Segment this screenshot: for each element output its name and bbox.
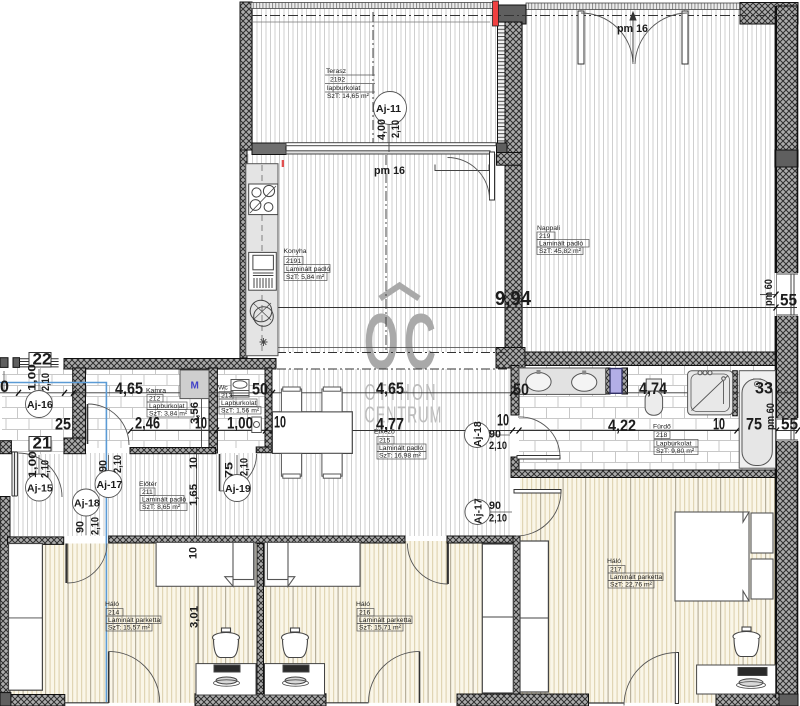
- svg-text:SzT: 15,57 m²: SzT: 15,57 m²: [108, 625, 151, 632]
- svg-text:90: 90: [489, 429, 501, 441]
- svg-text:75: 75: [224, 462, 236, 478]
- svg-text:Fürdő: Fürdő: [653, 424, 671, 431]
- svg-text:2,10: 2,10: [40, 460, 52, 478]
- svg-text:Laminált parketta: Laminált parketta: [359, 617, 411, 624]
- svg-text:214: 214: [108, 610, 120, 617]
- svg-text:10: 10: [274, 413, 286, 432]
- svg-text:55: 55: [780, 291, 797, 310]
- svg-text:Lapburkolat: Lapburkolat: [221, 400, 257, 407]
- svg-text:Aj-17: Aj-17: [473, 498, 485, 524]
- svg-text:Konyha: Konyha: [284, 248, 307, 255]
- svg-text:75: 75: [746, 415, 762, 434]
- svg-text:SzT: 45,82 m²: SzT: 45,82 m²: [539, 248, 582, 255]
- svg-text:10: 10: [713, 415, 725, 434]
- svg-text:90: 90: [75, 521, 87, 533]
- svg-text:Laminált parketta: Laminált parketta: [108, 617, 160, 624]
- svg-text:4,65: 4,65: [376, 379, 404, 398]
- svg-text:Nappali: Nappali: [537, 225, 561, 232]
- svg-text:Háló: Háló: [105, 601, 119, 608]
- svg-text:33: 33: [755, 379, 773, 398]
- svg-text:1,65: 1,65: [188, 484, 200, 506]
- svg-text:1,00: 1,00: [227, 414, 253, 433]
- svg-text:2,10: 2,10: [40, 373, 52, 391]
- svg-text:Aj-11: Aj-11: [376, 103, 401, 115]
- svg-text:Laminált padló: Laminált padló: [539, 241, 583, 248]
- svg-text:4,22: 4,22: [608, 416, 636, 435]
- svg-text:Lapburkolat: Lapburkolat: [149, 403, 185, 410]
- svg-text:SzT: 5,84 m²: SzT: 5,84 m²: [286, 274, 325, 281]
- svg-text:Háló: Háló: [607, 558, 621, 565]
- svg-text:pm 16: pm 16: [374, 165, 405, 177]
- svg-text:Kamra: Kamra: [146, 388, 166, 395]
- svg-text:1,00: 1,00: [27, 364, 39, 391]
- svg-text:10: 10: [497, 411, 509, 430]
- svg-text:pm 16: pm 16: [617, 23, 648, 35]
- svg-text:Aj-18: Aj-18: [472, 421, 484, 447]
- svg-text:10: 10: [188, 547, 200, 559]
- svg-text:212: 212: [149, 396, 161, 403]
- svg-text:4,65: 4,65: [115, 379, 143, 398]
- svg-text:M: M: [191, 381, 199, 392]
- svg-text:Előtér: Előtér: [139, 481, 157, 488]
- svg-text:4,77: 4,77: [376, 415, 404, 434]
- svg-text:SzT: 15,71 m²: SzT: 15,71 m²: [359, 625, 402, 632]
- svg-text:218: 218: [656, 432, 668, 439]
- svg-text:90: 90: [489, 500, 501, 512]
- svg-text:SzT: 14,65 m²: SzT: 14,65 m²: [327, 93, 370, 100]
- svg-text:Wc: Wc: [218, 385, 228, 392]
- svg-text:213: 213: [221, 393, 233, 400]
- svg-text:Lapburkolat: Lapburkolat: [656, 441, 692, 448]
- svg-text:SzT: 9,80 m²: SzT: 9,80 m²: [656, 448, 695, 455]
- svg-text:2192: 2192: [330, 77, 345, 84]
- svg-text:25: 25: [55, 415, 71, 434]
- svg-text:SzT: 22,76 m²: SzT: 22,76 m²: [610, 582, 653, 589]
- svg-text:3,56: 3,56: [189, 402, 201, 424]
- svg-text:2,10: 2,10: [390, 120, 402, 138]
- svg-text:50: 50: [252, 380, 268, 399]
- svg-text:219: 219: [539, 233, 551, 240]
- svg-text:Terasz: Terasz: [326, 68, 347, 75]
- svg-text:2,10: 2,10: [489, 513, 507, 525]
- svg-text:4,74: 4,74: [639, 379, 667, 398]
- svg-text:216: 216: [359, 610, 371, 617]
- svg-text:lapburkolat: lapburkolat: [327, 85, 360, 92]
- svg-text:Háló: Háló: [356, 601, 370, 608]
- svg-text:Aj-19: Aj-19: [225, 483, 251, 495]
- svg-text:21: 21: [33, 434, 52, 453]
- svg-text:2,10: 2,10: [112, 455, 124, 473]
- svg-text:Aj-16: Aj-16: [27, 399, 53, 411]
- svg-text:2,46: 2,46: [135, 414, 160, 433]
- svg-text:pm 60: pm 60: [763, 279, 775, 306]
- svg-text:2,10: 2,10: [239, 458, 251, 476]
- svg-text:9,94: 9,94: [495, 288, 532, 310]
- svg-text:0: 0: [0, 377, 9, 396]
- svg-text:Laminált padló: Laminált padló: [286, 266, 330, 273]
- svg-text:Aj-17: Aj-17: [97, 479, 123, 491]
- svg-text:Laminált padló: Laminált padló: [379, 445, 423, 452]
- svg-text:Aj-18: Aj-18: [74, 498, 100, 510]
- svg-text:3,01: 3,01: [189, 606, 201, 628]
- svg-text:Laminált parketta: Laminált parketta: [610, 574, 662, 581]
- svg-text:50: 50: [513, 380, 529, 399]
- svg-text:SzT: 8,65 m²: SzT: 8,65 m²: [142, 504, 181, 511]
- svg-text:217: 217: [610, 567, 622, 574]
- svg-text:211: 211: [142, 489, 153, 496]
- svg-text:2,10: 2,10: [489, 440, 507, 452]
- svg-text:pm 60: pm 60: [765, 403, 777, 430]
- svg-text:2191: 2191: [286, 258, 301, 265]
- svg-text:90: 90: [98, 460, 110, 472]
- svg-text:2,10: 2,10: [90, 517, 102, 535]
- svg-text:215: 215: [379, 438, 391, 445]
- svg-text:1,00: 1,00: [27, 451, 39, 478]
- svg-text:4,00: 4,00: [376, 119, 388, 140]
- svg-text:10: 10: [188, 457, 200, 469]
- svg-text:55: 55: [781, 415, 798, 434]
- svg-text:Aj-15: Aj-15: [27, 483, 53, 495]
- svg-text:SzT: 16,98 m²: SzT: 16,98 m²: [379, 453, 422, 460]
- svg-text:Laminált padló: Laminált padló: [142, 497, 186, 504]
- svg-text:OC: OC: [364, 297, 442, 386]
